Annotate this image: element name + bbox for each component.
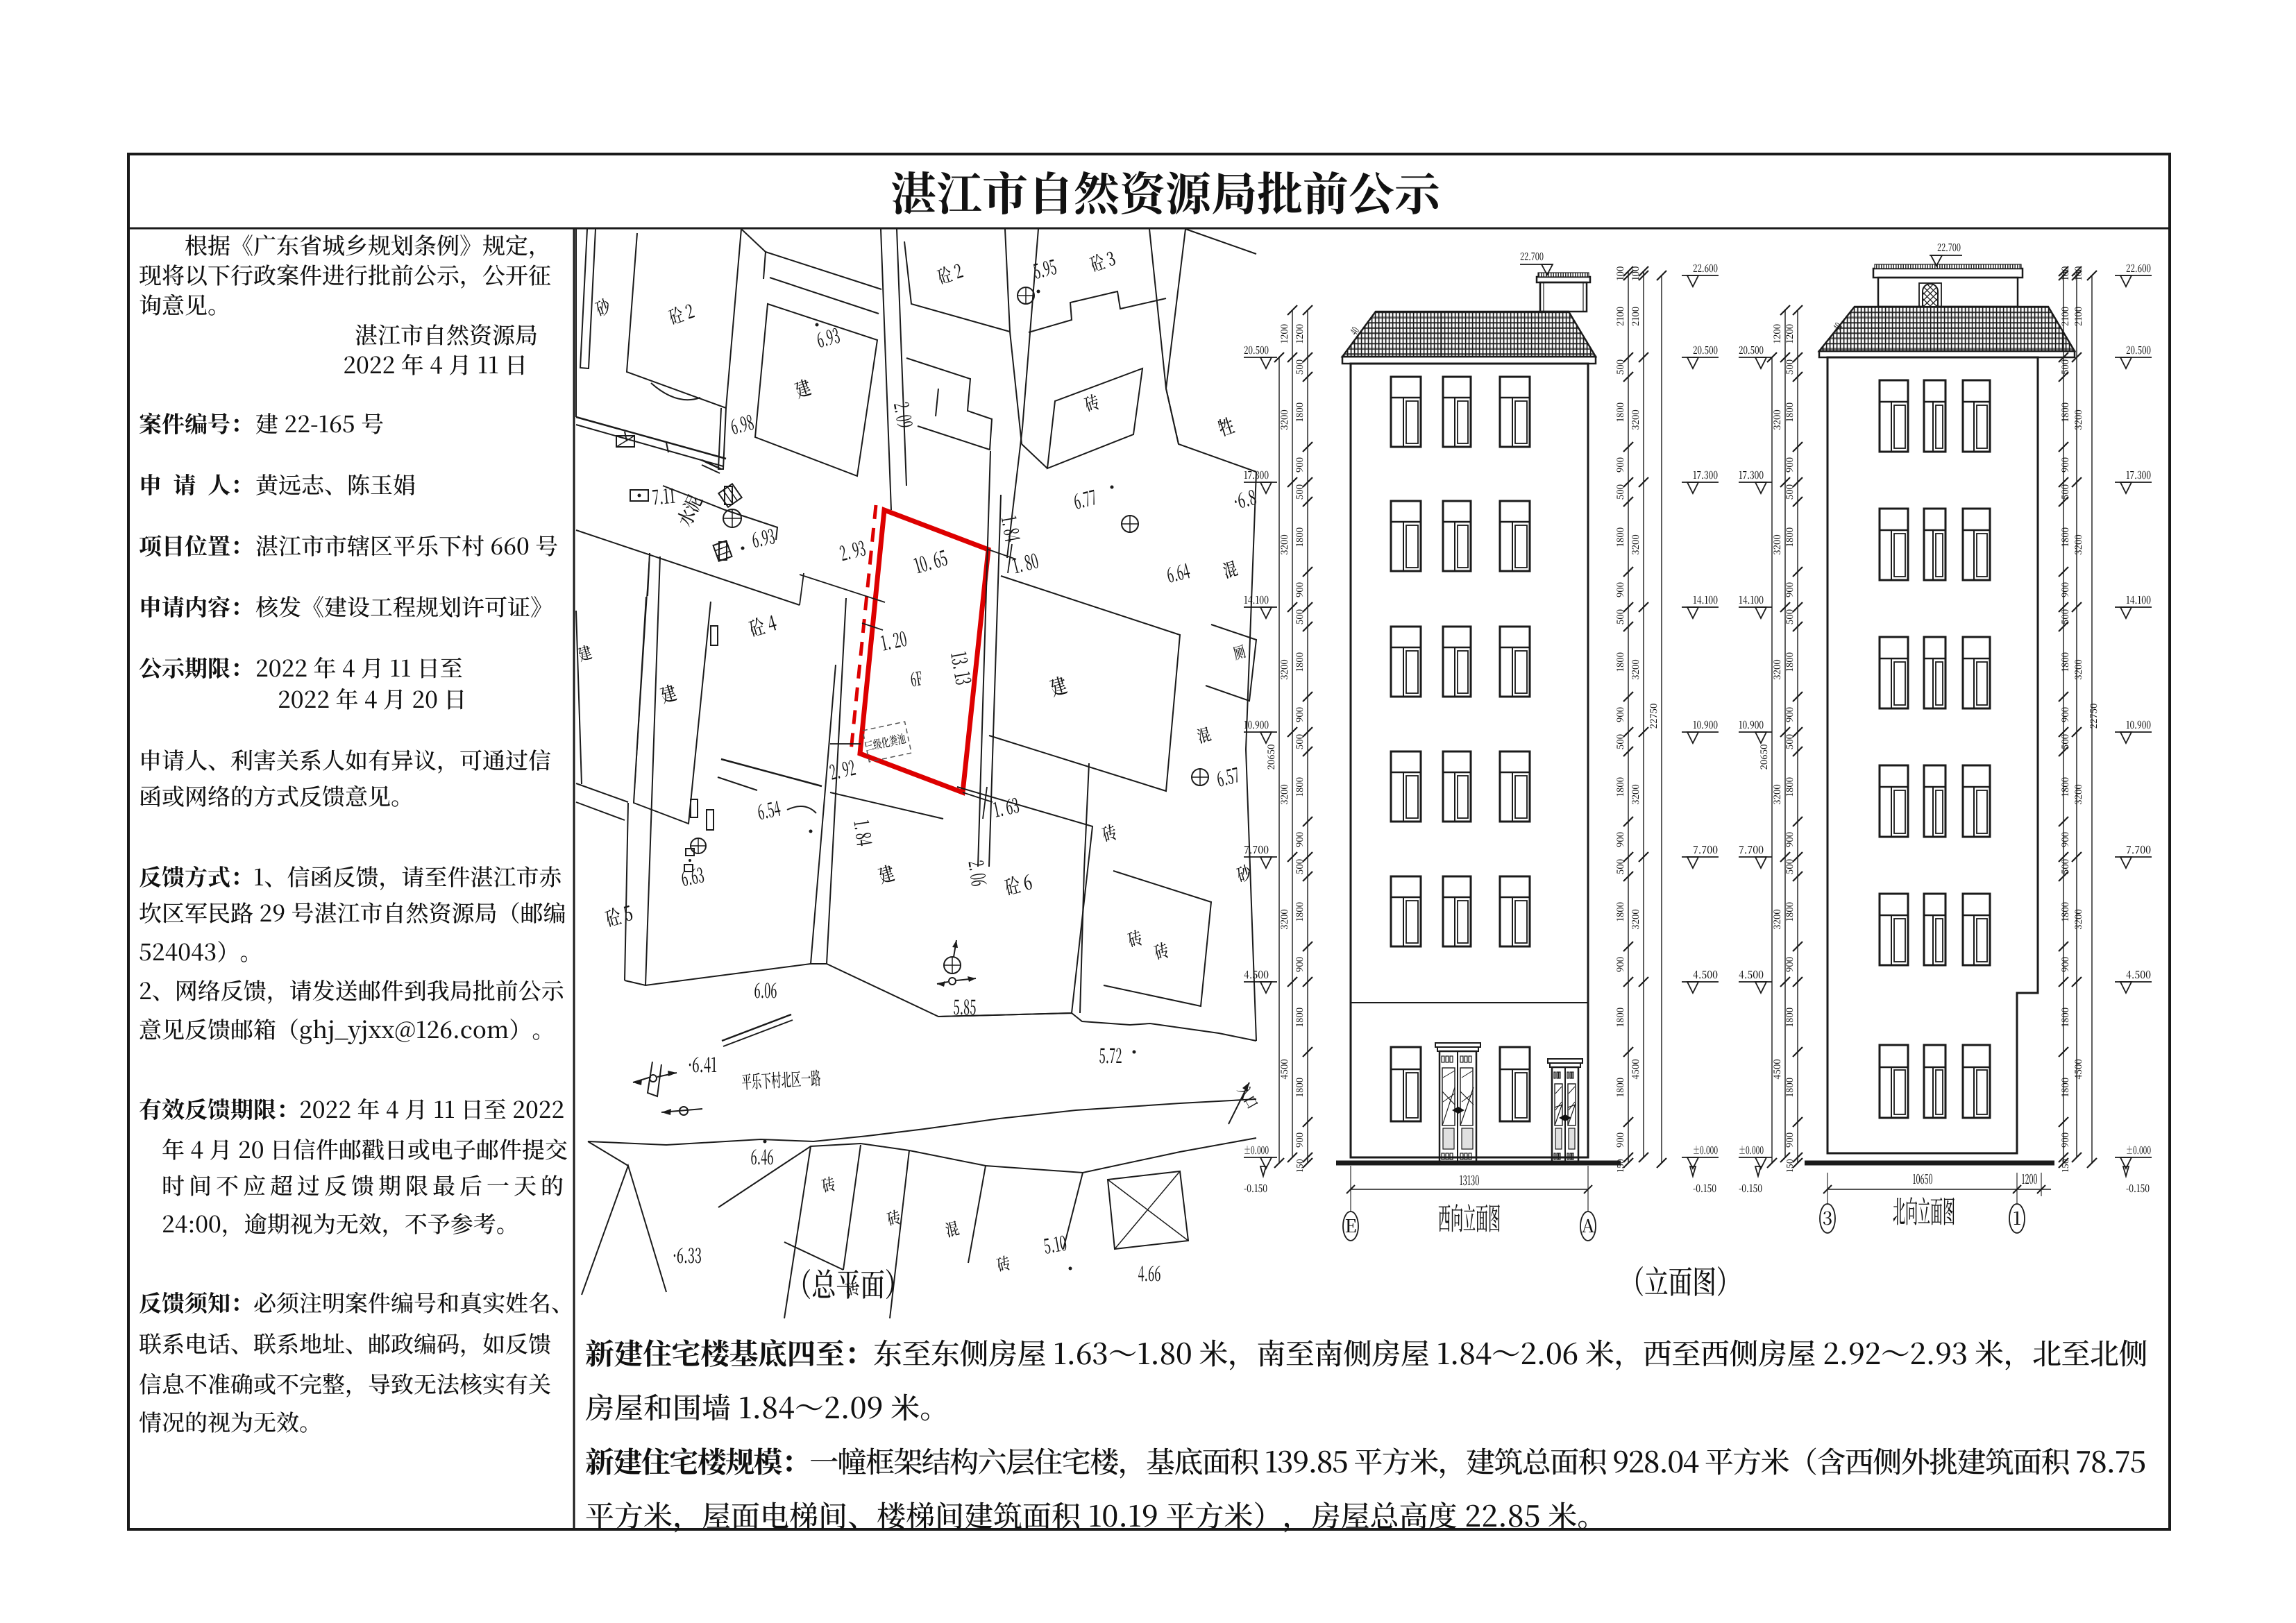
svg-text:1200: 1200 <box>1782 324 1796 343</box>
svg-text:±0.000: ±0.000 <box>2126 1143 2151 1157</box>
svg-text:1800: 1800 <box>1782 1078 1796 1097</box>
svg-text:1800: 1800 <box>1292 527 1306 547</box>
svg-text:平乐下村北区一路: 平乐下村北区一路 <box>741 1064 822 1094</box>
svg-text:4500: 4500 <box>2071 1059 2084 1080</box>
svg-text:-0.150: -0.150 <box>1739 1181 1762 1196</box>
svg-text:900: 900 <box>1292 832 1306 847</box>
svg-text:1200: 1200 <box>2022 1169 2038 1188</box>
svg-text:20650: 20650 <box>1757 745 1770 770</box>
svg-text:900: 900 <box>1613 832 1626 847</box>
svg-text:7.11: 7.11 <box>651 481 676 511</box>
svg-text:1800: 1800 <box>1292 777 1306 797</box>
svg-text:900: 900 <box>2058 707 2071 722</box>
svg-text:2022 年 4 月 11 日: 2022 年 4 月 11 日 <box>343 348 527 380</box>
svg-text:900: 900 <box>1292 957 1306 972</box>
svg-text:20.500: 20.500 <box>2126 343 2151 357</box>
svg-text:5.72: 5.72 <box>1099 1041 1122 1069</box>
svg-text:7.700: 7.700 <box>1244 842 1269 857</box>
svg-text:900: 900 <box>2058 582 2071 597</box>
svg-text:900: 900 <box>1782 707 1796 722</box>
svg-text:20.500: 20.500 <box>1739 343 1764 357</box>
svg-text:20.500: 20.500 <box>1693 343 1718 357</box>
svg-text:情况的视为无效。: 情况的视为无效。 <box>139 1405 322 1438</box>
svg-text:2、网络反馈，请发送邮件到我局批前公示: 2、网络反馈，请发送邮件到我局批前公示 <box>139 974 564 1006</box>
svg-text:现将以下行政案件进行批前公示，公开征: 现将以下行政案件进行批前公示，公开征 <box>139 258 551 291</box>
svg-text:1800: 1800 <box>2058 1078 2071 1097</box>
svg-text:100: 100 <box>1628 266 1641 281</box>
svg-text:13130: 13130 <box>1460 1171 1480 1189</box>
svg-text:反馈须知：: 反馈须知： <box>139 1286 253 1318</box>
svg-text:3200: 3200 <box>2071 909 2084 930</box>
svg-text:北向立面图: 北向立面图 <box>1893 1187 1955 1232</box>
svg-text:10.900: 10.900 <box>1693 717 1718 732</box>
svg-text:-0.150: -0.150 <box>1244 1181 1267 1196</box>
svg-text:联系电话、联系地址、邮政编码，如反馈: 联系电话、联系地址、邮政编码，如反馈 <box>139 1327 551 1359</box>
svg-text:时间不应超过反馈期限最后一天的: 时间不应超过反馈期限最后一天的 <box>162 1169 568 1201</box>
svg-text:3: 3 <box>1823 1205 1833 1230</box>
svg-text:1. 84: 1. 84 <box>848 818 880 847</box>
svg-text:申请内容：: 申请内容： <box>139 590 253 622</box>
svg-text:询意见。: 询意见。 <box>139 288 230 321</box>
svg-text:根据《广东省城乡规划条例》规定，: 根据《广东省城乡规划条例》规定， <box>185 228 551 261</box>
svg-text:1: 1 <box>2013 1205 2021 1230</box>
svg-text:2100: 2100 <box>1613 307 1626 326</box>
svg-text:3200: 3200 <box>1628 534 1641 555</box>
svg-text:±0.000: ±0.000 <box>1244 1143 1269 1157</box>
svg-text:150: 150 <box>1784 1159 1796 1172</box>
svg-text:17.300: 17.300 <box>1739 468 1764 482</box>
svg-text:1、信函反馈，请至件湛江市赤: 1、信函反馈，请至件湛江市赤 <box>253 860 562 892</box>
svg-text:17.300: 17.300 <box>1693 468 1718 482</box>
svg-text:1800: 1800 <box>2058 777 2071 797</box>
svg-text:意见反馈邮箱（ghj_yjxx@126.com）。: 意见反馈邮箱（ghj_yjxx@126.com）。 <box>139 1012 555 1045</box>
svg-text:有效反馈期限：: 有效反馈期限： <box>139 1092 299 1125</box>
svg-text:900: 900 <box>1613 707 1626 722</box>
svg-text:7.700: 7.700 <box>2126 842 2151 857</box>
svg-text:900: 900 <box>1613 957 1626 972</box>
svg-text:1800: 1800 <box>1613 1008 1626 1027</box>
svg-text:西向立面图: 西向立面图 <box>1438 1194 1501 1239</box>
svg-text:900: 900 <box>1292 707 1306 722</box>
svg-text:1800: 1800 <box>1292 402 1306 422</box>
svg-text:10.900: 10.900 <box>2126 717 2151 732</box>
svg-text:A: A <box>1582 1212 1595 1238</box>
svg-text:（立面图）: （立面图） <box>1621 1257 1741 1303</box>
svg-text:·6.41: ·6.41 <box>688 1050 717 1078</box>
svg-text:湛江市市辖区平乐下村 660 号: 湛江市市辖区平乐下村 660 号 <box>255 529 558 561</box>
svg-text:22750: 22750 <box>1646 704 1660 729</box>
svg-text:2022 年 4 月 20 日: 2022 年 4 月 20 日 <box>278 682 466 715</box>
svg-text:900: 900 <box>1782 457 1796 473</box>
svg-text:100: 100 <box>1613 266 1626 281</box>
svg-text:3200: 3200 <box>1628 409 1641 430</box>
svg-text:900: 900 <box>1782 1132 1796 1148</box>
svg-text:7.700: 7.700 <box>1739 842 1764 857</box>
svg-text:900: 900 <box>2058 1132 2071 1148</box>
svg-text:22.600: 22.600 <box>1693 261 1718 275</box>
svg-text:20650: 20650 <box>1264 745 1277 770</box>
svg-text:1800: 1800 <box>2058 1008 2071 1027</box>
svg-text:坎区军民路 29 号湛江市自然资源局（邮编: 坎区军民路 29 号湛江市自然资源局（邮编 <box>139 896 566 928</box>
svg-text:项目位置：: 项目位置： <box>139 529 253 561</box>
svg-text:900: 900 <box>2058 457 2071 473</box>
svg-text:1800: 1800 <box>2058 402 2071 422</box>
svg-text:公示期限：: 公示期限： <box>139 651 253 683</box>
svg-text:150: 150 <box>1294 1159 1306 1172</box>
svg-text:核发《建设工程规划许可证》: 核发《建设工程规划许可证》 <box>255 590 553 622</box>
svg-text:14.100: 14.100 <box>1693 593 1718 607</box>
svg-text:反馈方式：: 反馈方式： <box>139 860 253 892</box>
svg-text:1800: 1800 <box>2058 527 2071 547</box>
svg-text:150: 150 <box>2059 1159 2071 1172</box>
svg-text:3200: 3200 <box>2071 784 2084 805</box>
svg-text:100: 100 <box>2071 266 2084 281</box>
svg-text:房屋和围墙 1.84～2.09 米。: 房屋和围墙 1.84～2.09 米。 <box>585 1386 949 1427</box>
svg-text:4.500: 4.500 <box>1244 967 1269 982</box>
svg-text:-0.150: -0.150 <box>2126 1181 2150 1196</box>
svg-text:900: 900 <box>1613 582 1626 597</box>
svg-text:4.500: 4.500 <box>1739 967 1764 982</box>
svg-text:2022 年 4 月 11 日至: 2022 年 4 月 11 日至 <box>255 651 463 683</box>
svg-text:±0.000: ±0.000 <box>1693 1143 1718 1157</box>
svg-text:2100: 2100 <box>2058 307 2071 326</box>
svg-text:14.100: 14.100 <box>1244 593 1269 607</box>
svg-text:5.10: 5.10 <box>1041 1228 1069 1260</box>
svg-text:22.700: 22.700 <box>1520 249 1544 264</box>
svg-text:13. 13: 13. 13 <box>945 649 981 687</box>
svg-text:1800: 1800 <box>2058 652 2071 672</box>
svg-text:22.700: 22.700 <box>1937 240 1961 255</box>
svg-text:新建住宅楼规模：一幢框架结构六层住宅楼，基底面积 139.8: 新建住宅楼规模：一幢框架结构六层住宅楼，基底面积 139.85 平方米，建筑总面… <box>585 1440 2145 1481</box>
svg-text:4.500: 4.500 <box>2126 967 2151 982</box>
svg-text:1200: 1200 <box>1770 324 1783 343</box>
svg-text:黄远志、陈玉娟: 黄远志、陈玉娟 <box>255 468 416 500</box>
svg-text:·6.33: ·6.33 <box>673 1241 702 1269</box>
svg-text:900: 900 <box>2058 957 2071 972</box>
svg-text:3200: 3200 <box>1628 909 1641 930</box>
svg-text:24:00，逾期视为无效，不予参考。: 24:00，逾期视为无效，不予参考。 <box>162 1207 519 1239</box>
svg-text:2022 年 4 月 11 日至 2022: 2022 年 4 月 11 日至 2022 <box>299 1092 564 1125</box>
svg-text:2. 09: 2. 09 <box>888 400 920 430</box>
svg-text:22750: 22750 <box>2086 704 2100 729</box>
svg-text:1800: 1800 <box>1782 902 1796 921</box>
svg-text:湛江市自然资源局: 湛江市自然资源局 <box>355 318 538 350</box>
svg-text:申 请 人：: 申 请 人： <box>139 468 253 500</box>
svg-text:建 22-165 号: 建 22-165 号 <box>255 407 384 439</box>
svg-text:900: 900 <box>2058 832 2071 847</box>
svg-text:900: 900 <box>1613 457 1626 473</box>
svg-text:900: 900 <box>1292 582 1306 597</box>
svg-text:1800: 1800 <box>1292 902 1306 921</box>
svg-text:1800: 1800 <box>1782 1008 1796 1027</box>
svg-text:1800: 1800 <box>1782 402 1796 422</box>
svg-text:7.700: 7.700 <box>1693 842 1718 857</box>
svg-text:案件编号：: 案件编号： <box>139 407 253 439</box>
svg-text:17.300: 17.300 <box>2126 468 2151 482</box>
svg-text:6.06: 6.06 <box>754 976 777 1004</box>
svg-text:年 4 月 20 日信件邮戳日或电子邮件提交: 年 4 月 20 日信件邮戳日或电子邮件提交 <box>162 1132 568 1165</box>
svg-text:20.500: 20.500 <box>1244 343 1269 357</box>
svg-text:4500: 4500 <box>1628 1059 1641 1080</box>
svg-text:1200: 1200 <box>1277 324 1290 343</box>
svg-text:900: 900 <box>1292 1132 1306 1148</box>
svg-text:3200: 3200 <box>1628 659 1641 680</box>
svg-text:1800: 1800 <box>1613 777 1626 797</box>
svg-text:100: 100 <box>2058 266 2071 281</box>
svg-text:1800: 1800 <box>1782 652 1796 672</box>
svg-text:2. 06: 2. 06 <box>963 858 995 887</box>
svg-text:900: 900 <box>1613 1132 1626 1148</box>
svg-text:900: 900 <box>1782 832 1796 847</box>
svg-text:524043）。: 524043）。 <box>139 935 262 967</box>
svg-text:4.500: 4.500 <box>1693 967 1718 982</box>
svg-text:10.900: 10.900 <box>1739 717 1764 732</box>
svg-text:平方米，屋面电梯间、楼梯间建筑面积 10.19 平方米），房: 平方米，屋面电梯间、楼梯间建筑面积 10.19 平方米），房屋总高度 22.85… <box>585 1494 1606 1536</box>
svg-text:17.300: 17.300 <box>1244 468 1269 482</box>
svg-text:14.100: 14.100 <box>1739 593 1764 607</box>
svg-text:22.600: 22.600 <box>2126 261 2151 275</box>
svg-text:10.900: 10.900 <box>1244 717 1269 732</box>
svg-text:6.46: 6.46 <box>751 1142 774 1171</box>
svg-text:900: 900 <box>1292 457 1306 473</box>
svg-text:10650: 10650 <box>1913 1169 1933 1188</box>
svg-text:3200: 3200 <box>2071 534 2084 555</box>
svg-text:1800: 1800 <box>1292 1008 1306 1027</box>
svg-text:E: E <box>1344 1212 1356 1238</box>
svg-text:±0.000: ±0.000 <box>1739 1143 1764 1157</box>
svg-text:1200: 1200 <box>1292 324 1306 343</box>
svg-text:1800: 1800 <box>1292 652 1306 672</box>
svg-text:1800: 1800 <box>1613 527 1626 547</box>
svg-text:1800: 1800 <box>1782 527 1796 547</box>
svg-text:1800: 1800 <box>1782 777 1796 797</box>
svg-text:必须注明案件编号和真实姓名、: 必须注明案件编号和真实姓名、 <box>253 1286 574 1318</box>
svg-text:4.66: 4.66 <box>1138 1259 1161 1287</box>
svg-text:信息不准确或不完整，导致无法核实有关: 信息不准确或不完整，导致无法核实有关 <box>139 1367 551 1400</box>
svg-text:1800: 1800 <box>1613 652 1626 672</box>
svg-text:900: 900 <box>1782 582 1796 597</box>
svg-text:申请人、利害关系人如有异议，可通过信: 申请人、利害关系人如有异议，可通过信 <box>139 743 551 776</box>
svg-text:3200: 3200 <box>2071 659 2084 680</box>
svg-text:3200: 3200 <box>2071 409 2084 430</box>
svg-text:2100: 2100 <box>2071 307 2084 326</box>
svg-text:2100: 2100 <box>1628 307 1641 326</box>
svg-text:1800: 1800 <box>1613 402 1626 422</box>
svg-text:14.100: 14.100 <box>2126 593 2151 607</box>
svg-text:150: 150 <box>1614 1159 1626 1172</box>
svg-text:1800: 1800 <box>2058 902 2071 921</box>
svg-text:湛江市自然资源局批前公示: 湛江市自然资源局批前公示 <box>890 158 1440 223</box>
svg-text:-0.150: -0.150 <box>1693 1181 1716 1196</box>
svg-text:1800: 1800 <box>1292 1078 1306 1097</box>
svg-text:3200: 3200 <box>1628 784 1641 805</box>
svg-text:1800: 1800 <box>1613 902 1626 921</box>
svg-text:函或网络的方式反馈意见。: 函或网络的方式反馈意见。 <box>139 779 414 812</box>
svg-text:900: 900 <box>1782 957 1796 972</box>
svg-text:5.85: 5.85 <box>954 992 977 1021</box>
svg-text:1800: 1800 <box>1613 1078 1626 1097</box>
svg-text:新建住宅楼基底四至：东至东侧房屋 1.63～1.80 米，南: 新建住宅楼基底四至：东至东侧房屋 1.63～1.80 米，南至南侧房屋 1.84… <box>585 1332 2147 1373</box>
